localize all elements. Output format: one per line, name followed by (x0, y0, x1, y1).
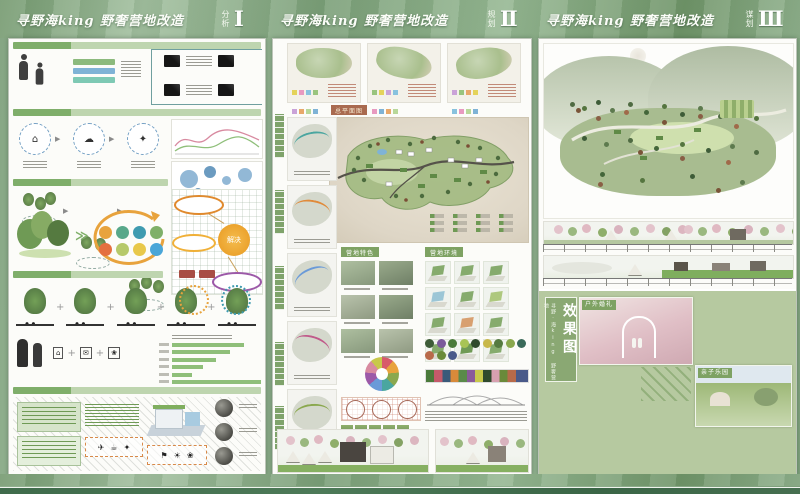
legend-chip (292, 90, 297, 95)
eco-node-icon (150, 243, 163, 256)
plant-photo-circle (494, 339, 503, 348)
note-lines (408, 84, 436, 98)
section-bar (13, 109, 261, 116)
elevation-label-ticks (543, 244, 792, 252)
legend-chip (379, 109, 384, 114)
figure (638, 338, 642, 348)
ranking-bar-chart (159, 335, 261, 381)
feature-photo (379, 295, 413, 319)
legend-chip (459, 109, 464, 114)
silhouette-icon (33, 343, 42, 367)
tent-icon (628, 264, 642, 275)
features-label: 营地特色 (341, 247, 379, 257)
pinwheel-diagram (365, 357, 399, 391)
section-elevation-1 (543, 221, 794, 245)
pictogram-icon (218, 55, 234, 67)
poster-title-1: 寻野海king 野奢营地改造 (16, 10, 184, 29)
legend-chip (306, 90, 311, 95)
ground-icon (19, 249, 71, 258)
bar (172, 343, 244, 347)
legend-chips (372, 82, 400, 120)
panel1-index-numeral: Ⅰ (234, 6, 244, 31)
axon-tile (483, 313, 509, 336)
flow-chips (73, 59, 115, 86)
plant-photo-circle (437, 351, 446, 360)
arrow-icon: ▶ (109, 135, 114, 143)
environment-label: 营地环境 (425, 247, 463, 257)
photo-tag: 亲子乐园 (698, 368, 732, 378)
panel3-index: 谋划 Ⅲ (744, 6, 784, 31)
photo-circle (215, 423, 233, 441)
axon-tile (483, 261, 509, 284)
axon-tile (454, 261, 480, 284)
icon-strip: ✈☕✦ (85, 437, 143, 457)
eco-node-icon (133, 243, 146, 256)
panel1-index-label: 分析 (220, 10, 231, 28)
activity-ring-diagram (179, 285, 209, 315)
tree-dots-autumn (576, 108, 581, 113)
note-chip-red (199, 270, 215, 278)
section-bar (13, 42, 261, 49)
eco-node-icon (99, 226, 112, 239)
axon-tile (454, 313, 480, 336)
axon-building (147, 401, 205, 439)
plan-blob (454, 43, 514, 82)
plan-circle-diagrams (341, 397, 421, 421)
caption-lines (23, 161, 47, 169)
solve-bubble: 解决 (218, 224, 250, 256)
axon-tile (425, 287, 451, 310)
plus-sign: + (105, 302, 115, 313)
building-block (488, 446, 506, 462)
panel-analysis: ⌂ ▶ ☁ ▶ ✦ ▶ (8, 38, 266, 476)
plant-photo-circle (448, 351, 457, 360)
elevation-render (435, 429, 529, 473)
caption-lines (186, 85, 212, 95)
building-block (370, 446, 394, 464)
activity-ring-diagram (221, 285, 251, 315)
mail-icon: ✉ (80, 347, 92, 359)
play-dome (710, 392, 730, 406)
issue-bubble (172, 234, 216, 252)
feature-photo (379, 329, 413, 353)
caption-lines (131, 161, 155, 169)
elevation-label-ticks (543, 278, 792, 286)
feature-photo (341, 261, 375, 285)
plant-photo-circle (425, 339, 434, 348)
panel1-index: 分析 Ⅰ (220, 6, 244, 31)
building-block (730, 229, 746, 240)
plant-photo-circle (517, 339, 526, 348)
farm-plots (720, 100, 754, 118)
tent-icon (466, 452, 480, 463)
circle-plan (346, 400, 365, 419)
gallery-side-caption: 寻野·海king 野奢营地 (543, 303, 557, 381)
caption-lines (239, 404, 257, 410)
caption-lines (121, 61, 141, 79)
legend-chip (466, 90, 471, 95)
chart-title-line (172, 335, 232, 339)
panel2-index: 规划 Ⅱ (486, 6, 518, 31)
photo-tag: 户外婚礼 (582, 300, 616, 310)
tent-icon (302, 453, 316, 464)
tree-icon (23, 193, 34, 206)
master-plan (329, 117, 529, 243)
hill-blob (552, 262, 612, 274)
master-plan-label: 总平面图 (331, 105, 367, 115)
legend-chip (452, 90, 457, 95)
building-block (674, 262, 688, 271)
analysis-card (287, 185, 337, 249)
zoning-card (447, 43, 521, 103)
flow-chip-blue (73, 68, 115, 74)
bracket-diagram (151, 49, 262, 105)
tree-icon (754, 388, 778, 406)
text-lines (22, 407, 76, 427)
note-lines (425, 411, 527, 423)
caption-lines (294, 171, 330, 177)
panel-renderings: 寻野·海king 野奢营地 效果图 户外婚礼 亲子乐园 国风打卡 观景台 (538, 38, 797, 476)
elevation-render (277, 429, 429, 473)
plant-photo-circle (460, 339, 469, 348)
building-block (340, 442, 366, 462)
legend-chip (386, 90, 391, 95)
plan-blob (373, 43, 434, 84)
legend-chip (306, 109, 311, 114)
legend-chip (379, 90, 384, 95)
side-tab (273, 109, 286, 163)
green-roof (153, 405, 185, 409)
bar (172, 365, 203, 369)
forest-illustration (17, 211, 73, 263)
blossom-trees (440, 437, 449, 446)
side-tab (273, 185, 286, 239)
bottom-dark-strip (0, 488, 800, 494)
eco-node-icon (116, 226, 129, 239)
axon-tile (483, 287, 509, 310)
bottom-band (0, 474, 800, 486)
blossom-trees (684, 225, 693, 234)
legend-chip (466, 109, 471, 114)
plan-blob (296, 48, 352, 78)
legend-chip (393, 109, 398, 114)
eco-icons (99, 219, 165, 263)
legend-chip (292, 109, 297, 114)
tree-people-unit (15, 285, 55, 329)
legend-chips (292, 82, 320, 120)
figure (632, 338, 636, 348)
strategy-section: ✈☕✦ ⚑☀❀ (13, 397, 261, 471)
note-chip-red (179, 270, 195, 278)
plant-photo-circle (483, 339, 492, 348)
caption-lines (239, 428, 257, 434)
ground-strip (436, 465, 528, 472)
zoning-card (367, 43, 441, 103)
legend-chip (393, 90, 398, 95)
home-icon: ⌂ (53, 347, 63, 359)
flag-icon: ⚑ (160, 451, 167, 460)
legend-chip (299, 90, 304, 95)
plant-photo-circle (448, 339, 457, 348)
flower-icon: ❀ (187, 451, 194, 460)
caption-lines (294, 239, 330, 245)
plane-icon: ✈ (98, 443, 105, 452)
note-lines (85, 404, 139, 428)
side-tab (273, 261, 286, 315)
analysis-card (287, 321, 337, 385)
flower-icon: ❀ (108, 347, 120, 359)
section-bar (13, 271, 163, 278)
bubble (238, 168, 252, 182)
amenity-icons: ⌂+ ✉+ ❀ (53, 347, 120, 359)
caption-lines (294, 375, 330, 381)
section-bar (13, 387, 261, 394)
tent-icon (286, 451, 300, 462)
legend-chips (452, 82, 480, 120)
panel3-index-numeral: Ⅲ (758, 6, 784, 31)
analysis-card (287, 117, 337, 181)
trend-chart (171, 119, 263, 159)
concept-circle-home: ⌂ (19, 123, 51, 155)
caption-lines (77, 161, 101, 169)
tree-dots (570, 102, 575, 107)
coffee-icon: ☕ (110, 443, 117, 452)
note-lines (488, 84, 516, 98)
bar (172, 358, 216, 362)
spark-icon: ✦ (124, 443, 131, 452)
wedding-arch (622, 316, 656, 358)
legend-row (430, 221, 522, 225)
map-label-chip (640, 156, 647, 160)
bar (172, 380, 261, 384)
building-block (155, 409, 183, 429)
map-label-chip (614, 130, 621, 134)
caption-lines (186, 56, 212, 66)
photo-kids-park: 亲子乐园 (695, 365, 792, 427)
circle-plan (398, 400, 417, 419)
feature-photo (341, 329, 375, 353)
legend-chip (473, 90, 478, 95)
building-block (712, 263, 730, 271)
legend-row (430, 228, 522, 232)
blossom-trees (286, 436, 295, 445)
analysis-card (287, 253, 337, 317)
poster-title-2: 寻野海king 野奢营地改造 (280, 10, 448, 29)
legend-chip (313, 109, 318, 114)
bubble (222, 176, 231, 185)
section-bar (13, 179, 168, 186)
problem-solve-diagram: 解决 (171, 189, 263, 295)
panel2-index-numeral: Ⅱ (500, 6, 518, 31)
concept-circle-spark: ✦ (127, 123, 159, 155)
tree-people-unit (116, 285, 156, 329)
axon-tile-grid (425, 261, 535, 339)
building-glass (185, 412, 200, 426)
tree-icon (45, 192, 56, 205)
section-elevation-2 (543, 255, 794, 279)
eco-node-icon (116, 243, 129, 256)
ground-strip (662, 270, 793, 278)
issue-bubble (174, 195, 224, 215)
hatch-patch (641, 367, 691, 401)
season-arcs-diagram (425, 387, 527, 407)
legend-row (430, 214, 522, 218)
renderings-gallery: 寻野·海king 野奢营地 效果图 户外婚礼 亲子乐园 国风打卡 观景台 (539, 289, 796, 477)
silhouette-icon (17, 339, 28, 367)
building-block (750, 261, 766, 271)
gallery-title: 效果图 (559, 303, 579, 381)
poster-stage: 寻野海king 野奢营地改造 分析 Ⅰ 寻野海king 野奢营地改造 规划 Ⅱ … (0, 0, 800, 494)
tree-people-unit (65, 285, 105, 329)
note-lines (328, 84, 356, 98)
panel3-index-label: 谋划 (744, 10, 755, 28)
eco-node-icon (133, 226, 146, 239)
feature-photo-grid (341, 261, 419, 355)
circle-plan (372, 400, 391, 419)
legend-chip (386, 109, 391, 114)
legend-chip (452, 109, 457, 114)
plant-circle-row (425, 339, 529, 365)
plant-photo-circle (506, 339, 515, 348)
pictogram-icon (218, 84, 234, 96)
legend-chip (372, 109, 377, 114)
renderings-title-band: 寻野·海king 野奢营地 效果图 (545, 297, 577, 382)
concept-circle-cloud: ☁ (73, 123, 105, 155)
ground-strip (278, 465, 428, 472)
map-label-chip (694, 128, 701, 132)
photo-circle (215, 399, 233, 417)
plant-photo-circle (425, 351, 434, 360)
plan-legend (430, 214, 522, 236)
legend-chip (459, 90, 464, 95)
pictogram-icon (164, 55, 180, 67)
road-drawing (544, 44, 793, 218)
flow-chip-teal (73, 77, 115, 83)
legend-chip (473, 109, 478, 114)
tree-icon (47, 220, 69, 246)
strategy-text-box (17, 436, 81, 466)
plus-sign: + (95, 348, 105, 359)
panel2-index-label: 规划 (486, 10, 497, 28)
axon-tile (425, 261, 451, 284)
flow-chip-green (73, 59, 115, 65)
blossom-trees (554, 225, 563, 234)
eco-node-icon (150, 226, 163, 239)
map-label-chip (656, 136, 663, 140)
bar (172, 350, 230, 354)
strategy-text-box (17, 402, 81, 432)
bar (172, 373, 192, 377)
caption-lines (294, 307, 330, 313)
feature-photo (341, 295, 375, 319)
panel-planning: 总平面图 (272, 38, 532, 476)
photo-wedding: 户外婚礼 (579, 297, 693, 365)
legend-chip (313, 90, 318, 95)
legend-chip (372, 90, 377, 95)
axon-tile (454, 287, 480, 310)
bubble (204, 166, 216, 178)
eco-cycle-diagram (93, 211, 167, 267)
arrow-icon: ▶ (55, 135, 60, 143)
plant-photo-circle (471, 339, 480, 348)
axon-tile (425, 313, 451, 336)
feature-photo (379, 261, 413, 285)
plant-photo-strip (425, 369, 529, 383)
plus-sign: + (66, 348, 76, 359)
person-icon (19, 61, 28, 80)
photo-circle (215, 447, 233, 465)
bubble (180, 170, 198, 188)
side-tab (273, 337, 286, 391)
plus-sign: + (156, 302, 166, 313)
poster-title-3: 寻野海king 野奢营地改造 (546, 10, 714, 29)
tent-icon (318, 451, 332, 462)
legend-chip (299, 109, 304, 114)
plant-photo-circle (437, 339, 446, 348)
zoning-card (287, 43, 361, 103)
pictogram-icon (164, 84, 180, 96)
text-lines (22, 441, 76, 461)
connector-line (228, 257, 238, 273)
plus-sign: + (55, 302, 65, 313)
person-icon (36, 68, 44, 84)
birdseye-view (543, 43, 794, 219)
icon-strip: ⚑☀❀ (147, 445, 207, 465)
chevron-right-icon: ≫ (75, 229, 89, 244)
eco-node-icon (99, 243, 112, 256)
caption-lines (239, 452, 257, 458)
sun-icon: ☀ (174, 451, 181, 460)
